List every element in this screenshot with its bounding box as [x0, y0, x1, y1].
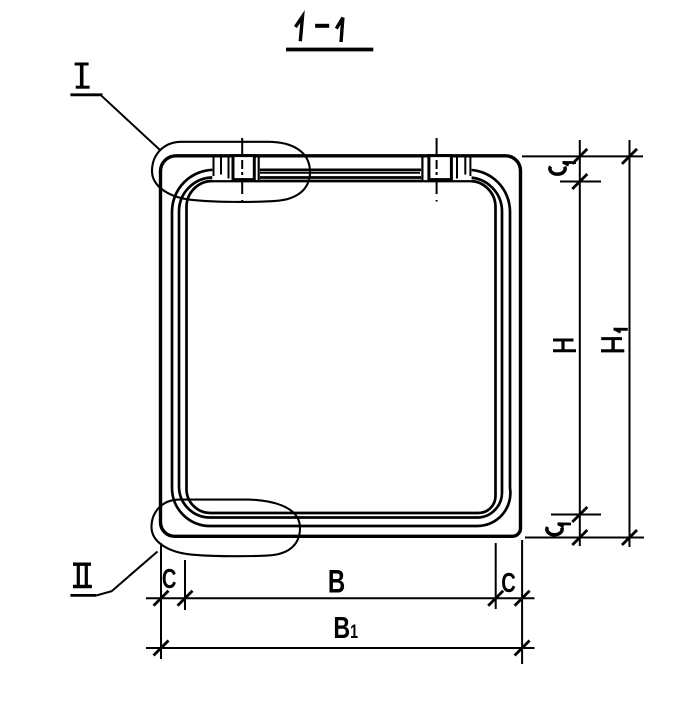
svg-text:C: C — [162, 564, 177, 595]
svg-text:C: C — [501, 568, 516, 599]
svg-text:B: B — [328, 563, 345, 599]
